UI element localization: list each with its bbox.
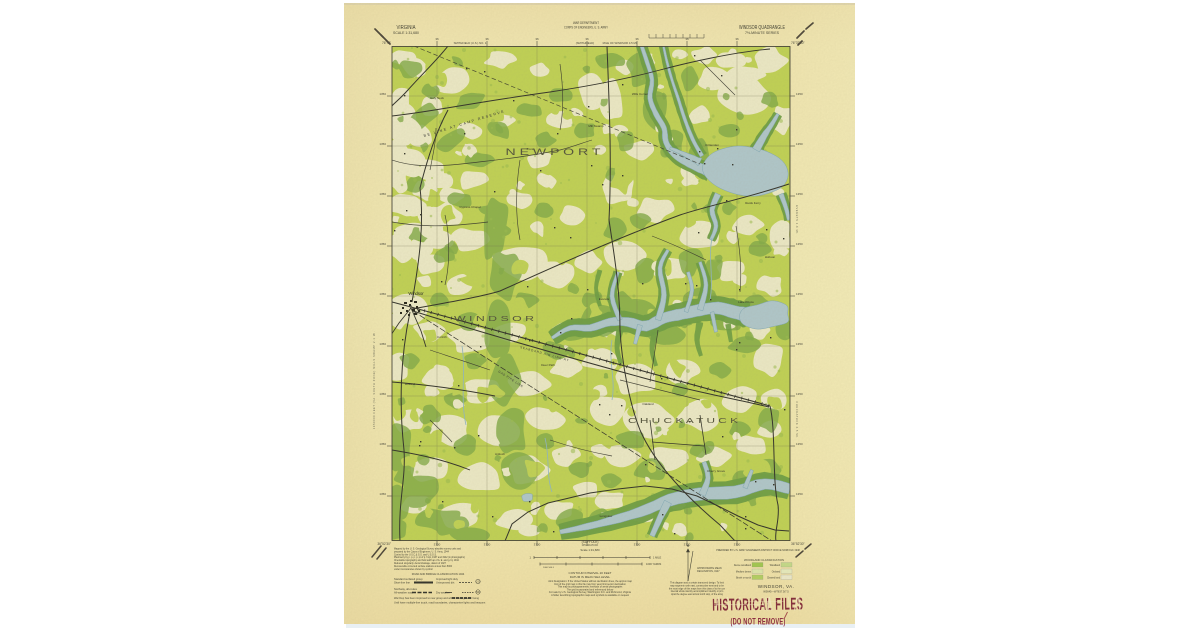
svg-text:(DO NOT REMOVE): (DO NOT REMOVE)	[731, 616, 786, 627]
